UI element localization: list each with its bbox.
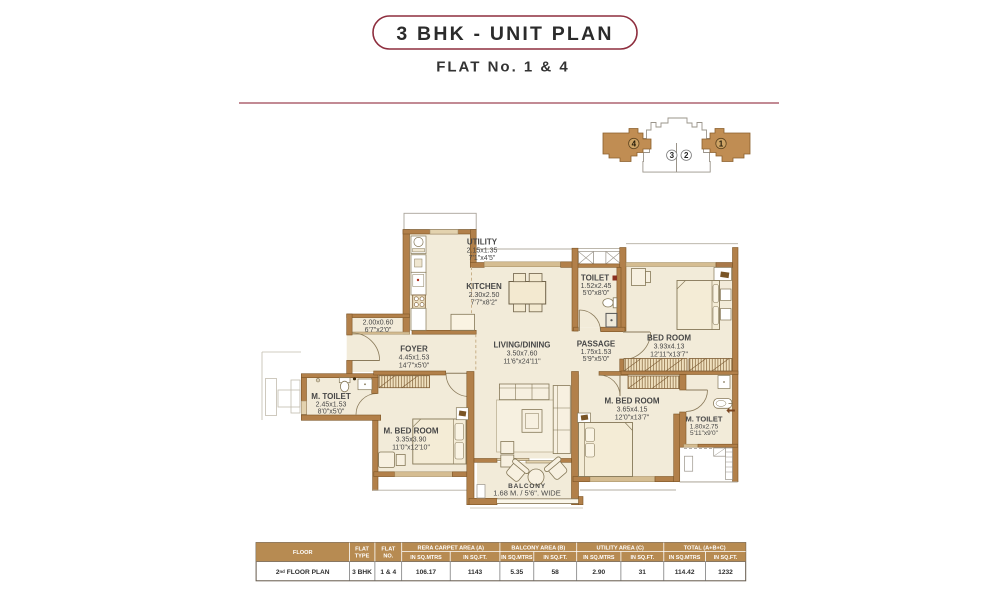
svg-text:3.50x7.60: 3.50x7.60 <box>507 351 538 358</box>
svg-text:7'7"x8'2": 7'7"x8'2" <box>471 300 498 307</box>
svg-text:106.17: 106.17 <box>416 569 437 576</box>
svg-text:4: 4 <box>632 139 637 148</box>
svg-text:TYPE: TYPE <box>355 554 370 560</box>
svg-text:FLOOR: FLOOR <box>293 550 313 556</box>
svg-text:58: 58 <box>552 569 560 576</box>
svg-text:TOTAL (A+B+C): TOTAL (A+B+C) <box>684 545 726 551</box>
svg-text:2.30x2.50: 2.30x2.50 <box>469 292 500 299</box>
svg-text:M. TOILET: M. TOILET <box>686 415 723 424</box>
svg-text:PASSAGE: PASSAGE <box>577 340 616 349</box>
svg-text:IN SQ.FT.: IN SQ.FT. <box>543 555 567 561</box>
svg-text:IN SQ.FT.: IN SQ.FT. <box>714 555 738 561</box>
svg-text:1.52x2.45: 1.52x2.45 <box>581 283 612 290</box>
svg-text:KITCHEN: KITCHEN <box>466 282 502 291</box>
svg-text:FLAT No. 1 & 4: FLAT No. 1 & 4 <box>436 59 570 76</box>
svg-text:IN SQ.FT.: IN SQ.FT. <box>630 555 654 561</box>
svg-text:LIVING/DINING: LIVING/DINING <box>494 341 551 350</box>
svg-text:IN SQ.MTRS: IN SQ.MTRS <box>669 555 701 561</box>
svg-text:FOYER: FOYER <box>400 345 428 354</box>
svg-text:3.93x4.13: 3.93x4.13 <box>654 344 685 351</box>
svg-text:1 & 4: 1 & 4 <box>380 569 396 576</box>
svg-text:5'9"x5'0": 5'9"x5'0" <box>583 356 610 363</box>
svg-text:FLAT: FLAT <box>355 547 369 553</box>
svg-text:BED ROOM: BED ROOM <box>647 334 691 343</box>
svg-text:IN SQ.MTRS: IN SQ.MTRS <box>583 555 615 561</box>
svg-text:3: 3 <box>670 151 675 160</box>
svg-text:BALCONY AREA (B): BALCONY AREA (B) <box>511 545 565 551</box>
svg-text:TOILET: TOILET <box>581 274 609 283</box>
svg-text:5'0"x8'0": 5'0"x8'0" <box>583 290 610 297</box>
svg-text:2.45x1.53: 2.45x1.53 <box>316 402 347 409</box>
svg-text:1232: 1232 <box>718 569 733 576</box>
svg-text:2nd FLOOR PLAN: 2nd FLOOR PLAN <box>276 569 330 576</box>
svg-text:M. BED ROOM: M. BED ROOM <box>604 397 659 406</box>
svg-text:5.35: 5.35 <box>510 569 523 576</box>
svg-text:6'7"x2'0": 6'7"x2'0" <box>365 327 392 334</box>
svg-text:1143: 1143 <box>468 569 483 576</box>
svg-text:5'11"x9'0": 5'11"x9'0" <box>690 430 719 437</box>
svg-text:11'0"x12'10": 11'0"x12'10" <box>392 445 430 452</box>
svg-text:2.15x1.35: 2.15x1.35 <box>467 248 498 255</box>
svg-text:IN SQ.FT.: IN SQ.FT. <box>463 555 487 561</box>
svg-text:3 BHK - UNIT PLAN: 3 BHK - UNIT PLAN <box>396 23 613 45</box>
svg-text:RERA CARPET AREA (A): RERA CARPET AREA (A) <box>418 545 485 551</box>
svg-text:4.45x1.53: 4.45x1.53 <box>399 355 430 362</box>
svg-text:2: 2 <box>684 151 689 160</box>
svg-text:UTILITY: UTILITY <box>467 238 498 247</box>
svg-text:M. BED ROOM: M. BED ROOM <box>383 427 438 436</box>
svg-text:1.68 M. / 5'6". WIDE: 1.68 M. / 5'6". WIDE <box>493 489 560 498</box>
svg-text:1.75x1.53: 1.75x1.53 <box>581 349 612 356</box>
svg-text:2.90: 2.90 <box>592 569 605 576</box>
svg-text:FLAT: FLAT <box>381 547 395 553</box>
svg-text:11'6"x24'11": 11'6"x24'11" <box>503 359 541 366</box>
svg-text:7'1"x4'5": 7'1"x4'5" <box>469 255 496 262</box>
svg-text:14'7"x5'0": 14'7"x5'0" <box>399 363 430 370</box>
svg-text:12'0"x13'7": 12'0"x13'7" <box>615 415 650 422</box>
svg-text:UTILITY AREA (C): UTILITY AREA (C) <box>597 545 644 551</box>
svg-text:IN SQ.MTRS: IN SQ.MTRS <box>410 555 442 561</box>
svg-text:1: 1 <box>719 139 724 148</box>
svg-text:3.65x4.15: 3.65x4.15 <box>617 407 648 414</box>
svg-text:114.42: 114.42 <box>675 569 695 576</box>
svg-text:IN SQ.MTRS: IN SQ.MTRS <box>501 555 533 561</box>
svg-text:NO.: NO. <box>383 554 393 560</box>
svg-text:M. TOILET: M. TOILET <box>311 392 351 401</box>
svg-text:31: 31 <box>639 569 647 576</box>
svg-text:3 BHK: 3 BHK <box>352 569 372 576</box>
svg-text:3.35x3.90: 3.35x3.90 <box>396 437 427 444</box>
svg-text:2.00x0.60: 2.00x0.60 <box>363 320 394 327</box>
svg-text:8'0"x5'0": 8'0"x5'0" <box>318 409 345 416</box>
svg-text:12'11"x13'7": 12'11"x13'7" <box>650 352 688 359</box>
